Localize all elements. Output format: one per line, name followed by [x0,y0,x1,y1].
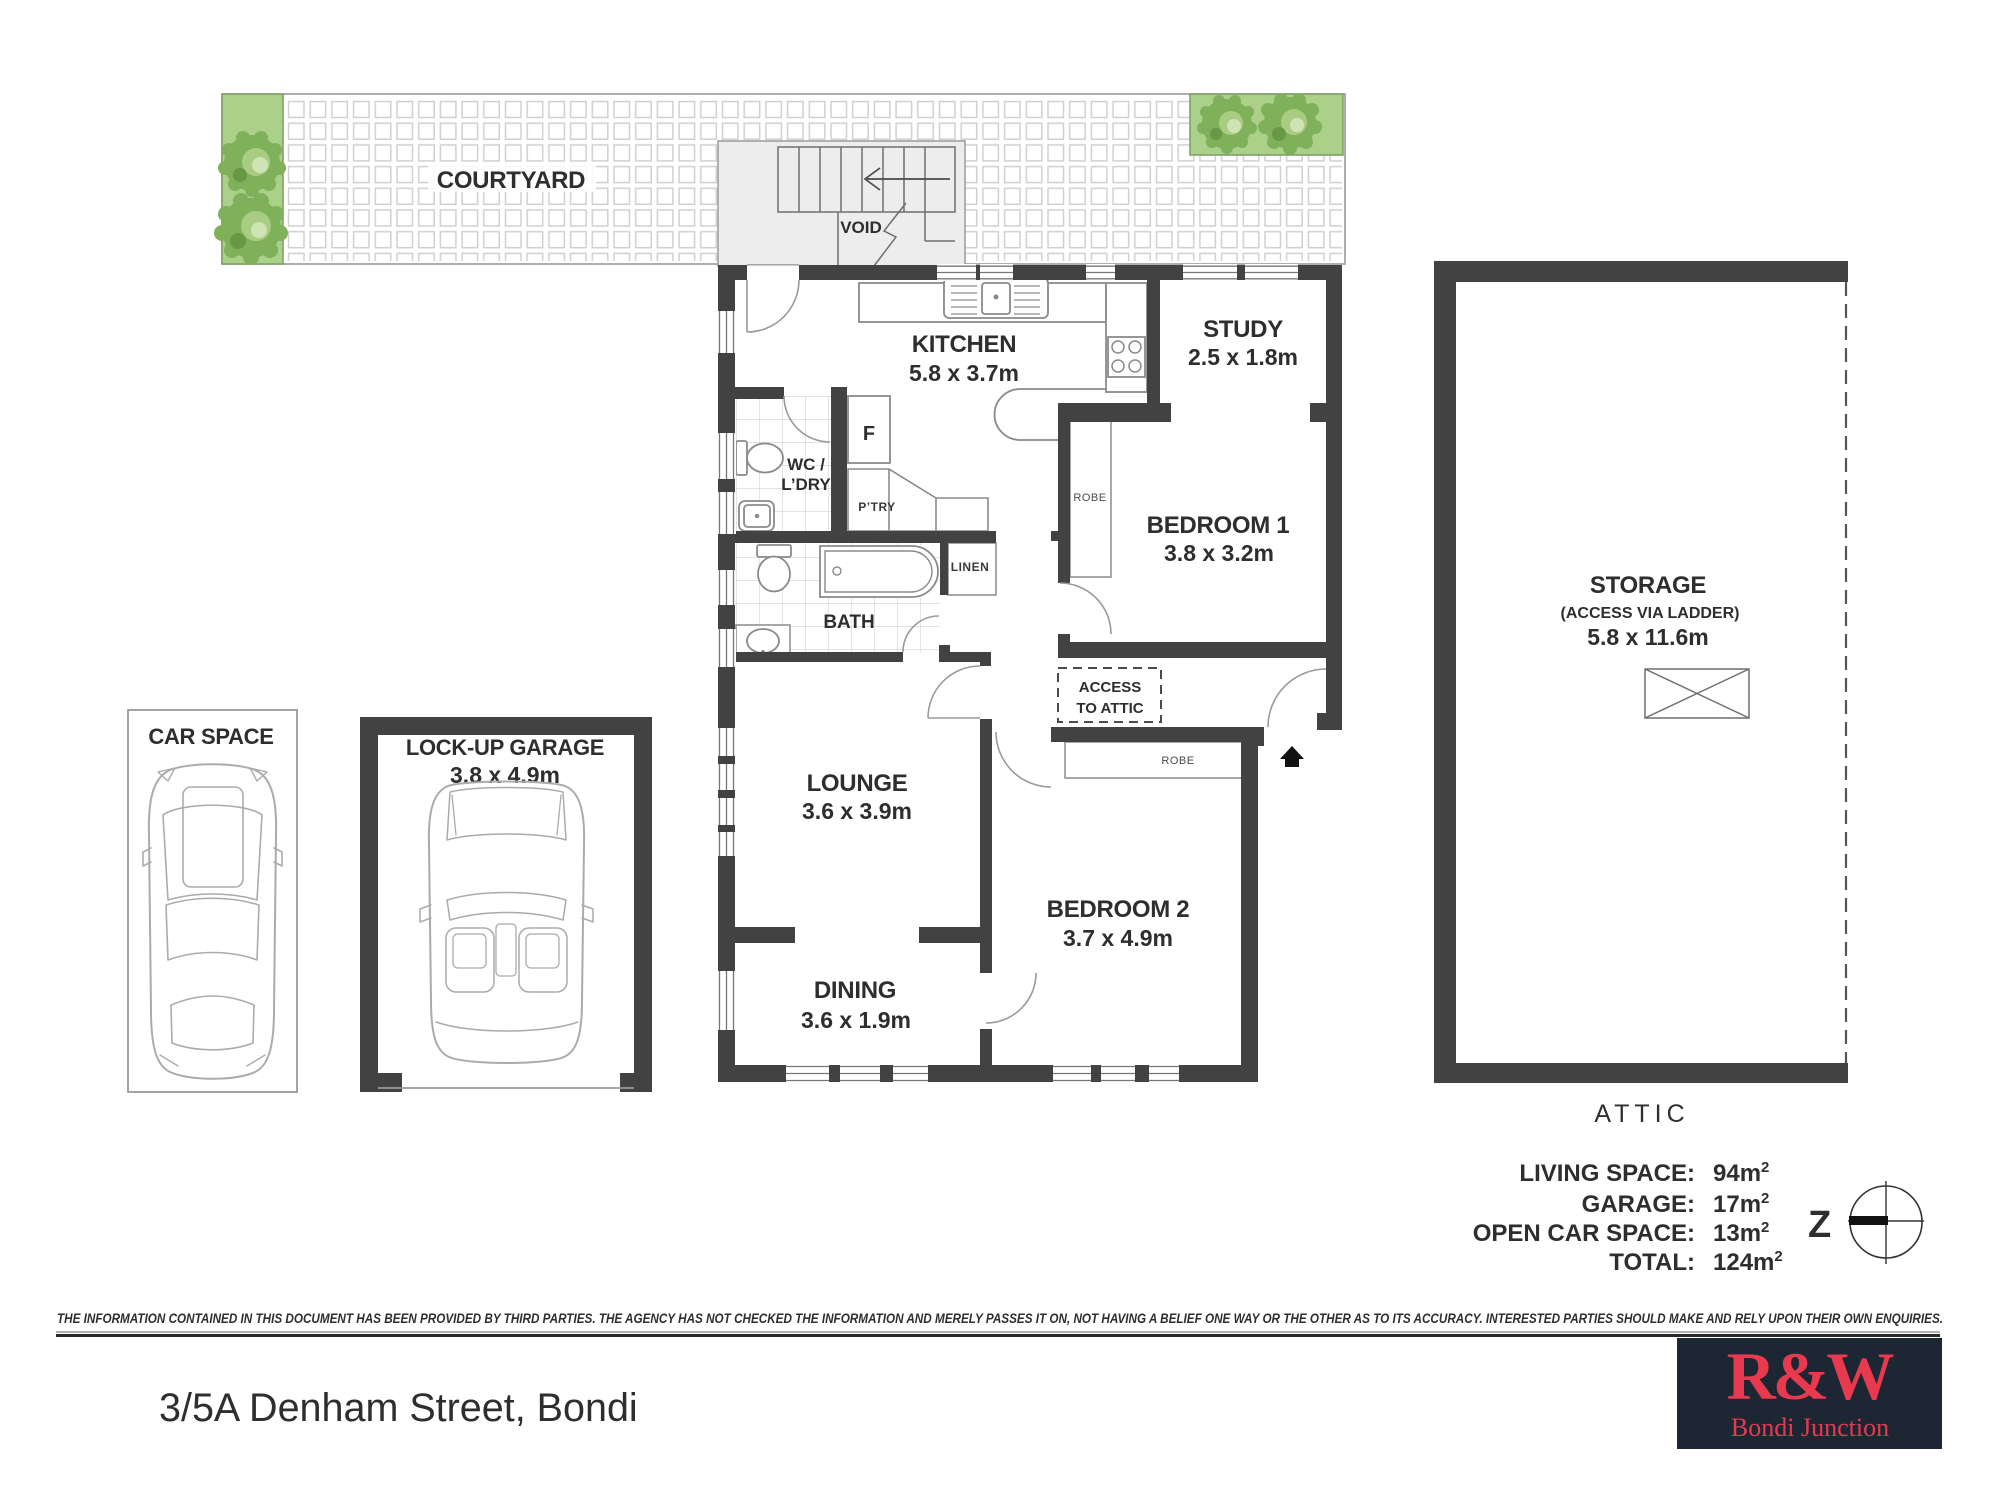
svg-text:2.5 x 1.8m: 2.5 x 1.8m [1188,344,1298,370]
svg-text:LIVING SPACE:: LIVING SPACE: [1519,1160,1695,1187]
svg-text:DINING: DINING [814,977,896,1004]
svg-text:3.8 x 4.9m: 3.8 x 4.9m [450,762,560,788]
svg-text:Z: Z [1808,1204,1831,1246]
svg-text:COURTYARD: COURTYARD [437,167,585,194]
svg-text:124m2: 124m2 [1713,1248,1783,1276]
svg-text:17m2: 17m2 [1713,1190,1769,1218]
svg-text:ATTIC: ATTIC [1594,1100,1689,1128]
svg-text:Bondi Junction: Bondi Junction [1731,1413,1889,1442]
svg-text:TOTAL:: TOTAL: [1609,1249,1695,1276]
svg-text:ROBE: ROBE [1073,492,1106,504]
svg-text:3.6 x 3.9m: 3.6 x 3.9m [802,798,912,824]
svg-text:STORAGE: STORAGE [1590,572,1706,599]
svg-text:ACCESS: ACCESS [1079,679,1142,696]
svg-text:(ACCESS VIA LADDER): (ACCESS VIA LADDER) [1561,605,1740,622]
svg-text:STUDY: STUDY [1203,316,1283,343]
svg-text:WC /: WC / [787,455,825,474]
svg-text:5.8 x 11.6m: 5.8 x 11.6m [1587,624,1709,650]
svg-text:3.6 x 1.9m: 3.6 x 1.9m [801,1007,911,1033]
svg-text:13m2: 13m2 [1713,1219,1769,1247]
svg-text:R&W: R&W [1727,1338,1894,1414]
svg-text:THE INFORMATION CONTAINED IN T: THE INFORMATION CONTAINED IN THIS DOCUME… [57,1311,1943,1326]
svg-text:L’DRY: L’DRY [781,475,831,494]
svg-text:3.7 x 4.9m: 3.7 x 4.9m [1063,925,1173,951]
svg-text:TO ATTIC: TO ATTIC [1076,700,1143,717]
svg-text:P’TRY: P’TRY [858,500,895,514]
svg-text:BATH: BATH [823,612,874,633]
svg-text:LINEN: LINEN [951,560,990,574]
svg-text:BEDROOM 1: BEDROOM 1 [1147,512,1290,539]
svg-text:GARAGE:: GARAGE: [1582,1191,1695,1218]
svg-text:94m2: 94m2 [1713,1159,1769,1187]
svg-text:ROBE: ROBE [1161,755,1194,767]
svg-text:VOID: VOID [840,218,882,237]
svg-text:F: F [863,423,875,445]
svg-text:CAR SPACE: CAR SPACE [148,724,273,749]
svg-text:OPEN CAR SPACE:: OPEN CAR SPACE: [1473,1220,1695,1247]
svg-text:LOUNGE: LOUNGE [807,770,908,797]
svg-text:5.8 x 3.7m: 5.8 x 3.7m [909,360,1019,386]
svg-text:BEDROOM 2: BEDROOM 2 [1047,896,1190,923]
svg-text:3.8 x 3.2m: 3.8 x 3.2m [1164,540,1274,566]
svg-text:KITCHEN: KITCHEN [912,331,1017,358]
svg-text:3/5A Denham Street, Bondi: 3/5A Denham Street, Bondi [159,1386,638,1430]
svg-text:LOCK-UP GARAGE: LOCK-UP GARAGE [406,735,604,760]
